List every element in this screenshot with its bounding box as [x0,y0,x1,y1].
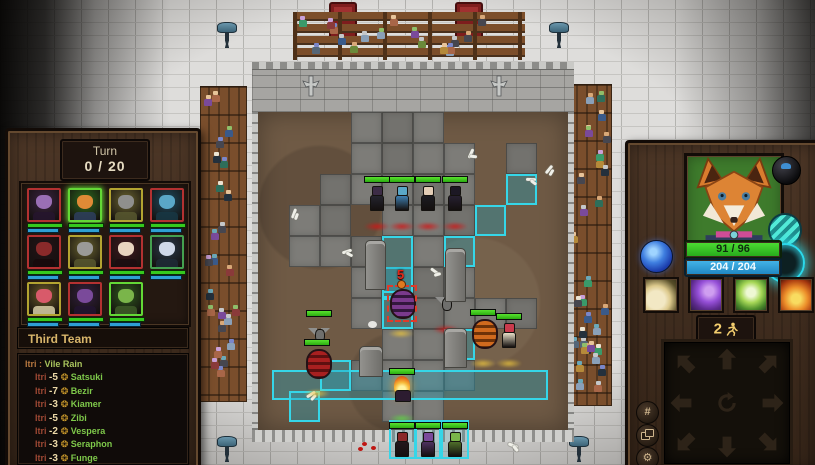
unit-sprite [421,186,435,211]
damage-type-icon: ❂ [61,372,71,382]
spectator-body [478,19,486,26]
brazier [548,22,570,48]
brazier [216,22,238,48]
log-entry: Itri -5 ❂ Satsuki [25,372,188,385]
spectator [207,305,215,316]
spectator-head [466,31,471,35]
log-entry: Itri -3 ❂ Seraphon [25,439,188,452]
dpad-arrow-down-right[interactable] [751,425,788,462]
stone-tile [382,112,413,143]
portrait-torso [115,259,137,267]
spectator [299,16,307,27]
unit-body [448,195,462,211]
spectator [227,339,235,350]
spectator-body [220,161,228,168]
portrait-torso [115,212,137,220]
unit-glow-red [415,222,441,231]
movement-dpad [661,339,793,465]
left-bleachers [200,86,247,402]
spectator [224,190,232,201]
unit-health-fill [497,314,521,319]
spectator [464,31,472,42]
spectator-body [585,130,593,137]
gargoyle-statue-icon [490,73,508,99]
unit-body [370,195,384,211]
portrait-face [77,289,93,303]
gear-icon: ⚙ [643,452,653,464]
portrait-mana-bar [150,228,182,233]
unit-health-fill [416,423,440,428]
unit-glow-gold [304,389,330,398]
spectator [211,358,219,369]
spectator [595,196,603,207]
stone-tile [351,143,382,174]
portrait-torso [115,306,137,314]
unit-health-fill [390,177,414,182]
portrait-bat[interactable] [68,235,102,269]
portrait-bat[interactable] [109,188,143,222]
spectator-body [576,365,584,372]
spectator [586,93,594,104]
portrait-face [77,242,93,256]
log-target-name: Vespera [71,426,106,436]
turn-value: 0 / 20 [62,158,148,174]
portrait-torso [74,259,96,267]
spectator-body [216,141,224,148]
log-source: Itri [35,413,49,423]
moves-remaining: 2 [696,315,756,342]
portrait-face [118,242,134,256]
spectator-body [592,357,600,364]
unit-health-fill [390,369,414,374]
unit-sprite [421,432,435,457]
spectator [206,289,214,300]
log-source: Itri [35,439,49,449]
stone-tile [413,112,444,143]
spectator-body [586,97,594,104]
stone-tile [506,143,537,174]
portrait-orc[interactable] [109,282,143,316]
spectator-body [218,312,226,319]
portrait-face [77,195,93,209]
spectator-fence [293,12,525,60]
spectator-body [232,309,240,316]
orb-menu-button[interactable] [772,156,801,185]
game-screen: 5 Turn 0 / 20 Third Team Itri : Vile Rai… [0,0,815,465]
spectator [594,381,602,392]
spectator [598,365,606,376]
portrait-face [118,289,134,303]
spectator-body [596,154,604,161]
portrait-torso [33,212,55,220]
log-entry: Itri -3 ❂ Kiamer [25,399,188,412]
spectator [216,137,224,148]
unit-health-fill [443,177,467,182]
stone-tile [320,174,351,205]
damage-type-icon: ❂ [61,386,71,396]
unit-health-bar [304,339,330,346]
unit-health-bar [389,368,415,375]
spectator [216,181,224,192]
fence-post [518,12,522,60]
spectator [205,255,213,266]
portrait-mana-bar [109,228,141,233]
spectator-body [580,209,588,216]
portrait-red-hood[interactable] [27,235,61,269]
portrait-torso [156,259,178,267]
unit-glow-red [364,222,390,231]
ability-ember-burst[interactable] [778,277,814,313]
spectator-body [211,233,219,240]
spectator-body [593,328,601,335]
unit-sprite [448,432,462,457]
spectator-body [216,185,224,192]
spectator-body [574,300,582,307]
spectator [213,152,221,163]
portrait-siren[interactable] [150,188,184,222]
spectator-body [598,114,606,121]
damage-type-icon: ❂ [61,399,71,409]
unit-health-fill [305,340,329,345]
fence-post [473,12,477,60]
spectator [603,132,611,143]
unit-health-fill [390,423,414,428]
portrait-mana-bar [27,228,59,233]
spectator [312,43,320,54]
spectator [350,42,358,53]
log-source: Itri [35,453,49,463]
damage-type-dot [397,280,406,289]
spectator-body [211,362,219,369]
spectator [580,205,588,216]
stone-tile [320,205,351,236]
fence-post [428,12,432,60]
spectator-body [226,269,234,276]
spectator-body [603,136,611,143]
spectator-body [299,20,307,27]
dpad-arrow-up[interactable] [714,346,740,372]
spectator-body [218,226,226,233]
unit-health-bar [496,313,522,320]
dpad-arrow-left[interactable] [668,390,694,416]
spectator-head [589,341,594,345]
spectator-body [601,308,609,315]
unit-health-fill [307,311,331,316]
portrait-face [159,195,175,209]
dpad-arrow-down-left[interactable] [667,425,704,462]
arena-top-wall [252,62,574,115]
unit-glow-gold [470,359,496,368]
unit-health-bar [389,422,415,429]
portrait-face [118,195,134,209]
spectator-head [233,305,238,309]
spectator-body [205,259,213,266]
unit-body [448,441,462,457]
portrait-face [36,195,52,209]
unit-sprite [502,323,516,348]
barrel-body [472,319,498,349]
unit-body [502,332,516,348]
spectator-body [377,32,385,39]
spectator [327,18,335,29]
spectator-body [212,95,220,102]
log-target-name: Zibi [71,413,87,423]
spectator [225,126,233,137]
log-ability-name: Vile Rain [45,359,83,369]
spectator-body [440,47,448,54]
spectator [226,265,234,276]
log-entry: Itri -5 ❂ Zibi [25,413,188,426]
movement-range-tile[interactable] [475,205,506,236]
spectator [418,37,426,48]
unit-health-bar [415,422,441,429]
unit-health-bar [442,422,468,429]
layers-button[interactable] [636,424,659,447]
unit-glow-red [442,222,468,231]
damage-type-icon: ❂ [61,413,71,423]
spectator [212,91,220,102]
log-source: Itri : [25,359,45,369]
fence-post [293,12,297,60]
spectator [211,229,219,240]
portrait-imp[interactable] [68,282,102,316]
log-damage-amount: -3 [49,439,61,450]
unit-health-fill [416,177,440,182]
log-target-name: Bezir [71,386,93,396]
spectator-body [576,383,584,390]
combat-log[interactable]: Itri : Vile RainItri -5 ❂ SatsukiItri -7… [17,353,189,465]
log-damage-amount: -3 [49,399,61,410]
spectator-body [587,345,595,352]
ability-purple-axe[interactable] [688,277,724,313]
orb-glint [781,163,791,169]
dpad-arrow-down[interactable] [714,434,740,460]
spectator [214,347,222,358]
portrait-mushroom[interactable] [27,282,61,316]
damage-type-icon: ❂ [61,439,71,449]
spectator [440,43,448,54]
spectator [598,110,606,121]
spectator-head [218,137,223,141]
statue-body [444,328,467,368]
ability-green-orb[interactable] [733,277,769,313]
log-damage-amount: -7 [49,386,61,397]
spectator [390,15,398,26]
spectator-body [464,35,472,42]
unit-sprite [395,432,409,457]
team-panel: Turn 0 / 20 Third Team Itri : Vile RainI… [5,128,201,465]
spectator [577,173,585,184]
spectator-head [604,132,609,136]
unit-health-bar [364,176,390,183]
spectator [587,341,595,352]
brazier [216,436,238,462]
spectator-body [218,325,226,332]
barrel-body [306,349,332,379]
spectator-body [224,194,232,201]
selected-unit-marker[interactable] [387,285,417,322]
unit-glow-gold [388,329,414,338]
spectator-body [213,156,221,163]
spectator-head [229,339,234,343]
portrait-torso [74,306,96,314]
spectator [478,15,486,26]
bone-debris [470,155,477,159]
log-damage-amount: -5 [49,413,61,424]
grid-glyph: # [644,406,650,418]
spectator-head [596,381,601,385]
portrait-vampire[interactable] [27,188,61,222]
log-entry: Itri -7 ❂ Bezir [25,386,188,399]
portrait-torso [156,212,178,220]
spectator-body [327,22,335,29]
spectator [584,312,592,323]
unit-sprite [448,186,462,211]
health-value: 91 / 96 [716,243,750,255]
spectator [584,276,592,287]
stone-tile [413,236,444,267]
log-damage-amount: -3 [49,453,61,464]
portrait-fox[interactable] [68,188,102,222]
mana-bar: 204 / 204 [684,258,782,277]
portrait-face [159,242,175,256]
portrait-mana-bar [27,275,59,280]
spectator-body [584,316,592,323]
unit-health-bar [415,176,441,183]
statue-body [365,240,386,290]
unit-health-fill [365,177,389,182]
spectator-body [206,293,214,300]
unit-body [395,441,409,457]
spectator [232,305,240,316]
spectator [601,304,609,315]
stone-tile [413,329,444,360]
roster-grid [19,181,191,327]
ability-wing-strike[interactable] [643,277,679,313]
settings-button[interactable]: ⚙ [636,447,659,465]
unit-health-fill [471,310,495,315]
gargoyle-statue-icon [302,73,320,99]
spectator-body [577,177,585,184]
unit-health-bar [470,309,496,316]
stone-tile [351,112,382,143]
stone-tile [413,143,444,174]
blood-splatter [358,447,363,451]
frost-orb-icon[interactable] [640,240,673,273]
log-target-name: Kiamer [71,399,102,409]
moves-value: 2 [714,320,722,337]
stone-tile [382,143,413,174]
stone-tile [351,298,382,329]
spectator-body [361,35,369,42]
spectator-body [601,169,609,176]
unit-body [421,441,435,457]
grid-toggle-button[interactable]: # [636,401,659,424]
spectator-body [207,309,215,316]
spectator-body [595,200,603,207]
log-target-name: Seraphon [71,439,113,449]
log-title-line: Itri : Vile Rain [25,359,188,372]
statue-body [359,346,383,377]
spectator [220,157,228,168]
spectator [593,324,601,335]
spectator [576,361,584,372]
smoke-puff [368,321,377,328]
dpad-arrow-up-right[interactable] [751,345,788,382]
spectator-body [594,385,602,392]
spectator [585,126,593,137]
health-bar: 91 / 96 [684,240,782,259]
spectator [218,222,226,233]
statue-body [445,248,466,302]
spectator [361,31,369,42]
portrait-mana-bar [68,275,100,280]
spectator-body [227,343,235,350]
blood-splatter [371,446,376,450]
spectator-body [217,370,225,377]
spectator [574,296,582,307]
spectator-body [418,41,426,48]
spectator [596,150,604,161]
spectator-body [584,280,592,287]
unit-health-bar [442,176,468,183]
log-source: Itri [35,399,49,409]
battle-arena: 5 [252,62,574,442]
dpad-rotate-button[interactable] [714,390,740,416]
spectator-head [226,314,231,318]
spectator [411,27,419,38]
portrait-mana-bar [109,275,141,280]
unit-body [421,195,435,211]
spectator-body [579,331,587,338]
portrait-pale-lord[interactable] [150,235,184,269]
portrait-face [36,289,52,303]
runner-icon [726,322,738,336]
unit-sprite [370,186,384,211]
portrait-torso [33,259,55,267]
log-damage-amount: -2 [49,426,61,437]
arena-floor: 5 [258,112,568,430]
spectator [576,379,584,390]
spectator [597,91,605,102]
portrait-mana-bar [68,228,100,233]
turn-counter: Turn 0 / 20 [60,139,150,181]
spectator-body [597,95,605,102]
spectator-body [312,47,320,54]
unit-health-bar [389,176,415,183]
log-source: Itri [35,386,49,396]
log-target-name: Satsuki [71,372,103,382]
spectator-body [390,19,398,26]
spectator-head [577,361,582,365]
hero-panel: 91 / 96 204 / 204 2 # ⚙ [625,140,815,465]
spectator-body [225,130,233,137]
unit-glow-gold [496,359,522,368]
spectator [592,353,600,364]
log-entry: Itri -3 ❂ Funge [25,453,188,465]
mana-value: 204 / 204 [710,261,756,273]
stone-tile [289,236,320,267]
spectator [579,327,587,338]
damage-type-icon: ❂ [61,453,71,463]
spectator [377,28,385,39]
spectator-body [350,46,358,53]
dpad-arrow-up-left[interactable] [667,345,704,382]
arena-right-wall [568,112,574,430]
dpad-arrow-right[interactable] [760,390,786,416]
unit-body [395,195,409,211]
portrait-dark-lady[interactable] [109,235,143,269]
